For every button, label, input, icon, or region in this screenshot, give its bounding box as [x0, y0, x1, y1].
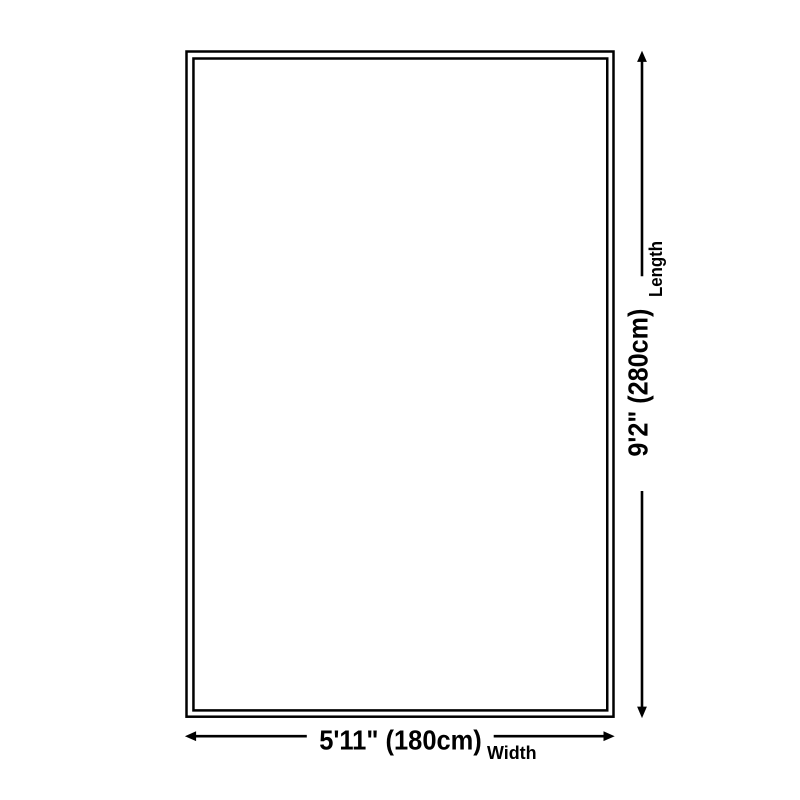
svg-text:9'2" (280cm): 9'2" (280cm) — [622, 309, 653, 457]
svg-text:Width: Width — [487, 743, 537, 763]
svg-text:Length: Length — [646, 241, 666, 297]
svg-text:5'11" (180cm): 5'11" (180cm) — [319, 724, 482, 755]
